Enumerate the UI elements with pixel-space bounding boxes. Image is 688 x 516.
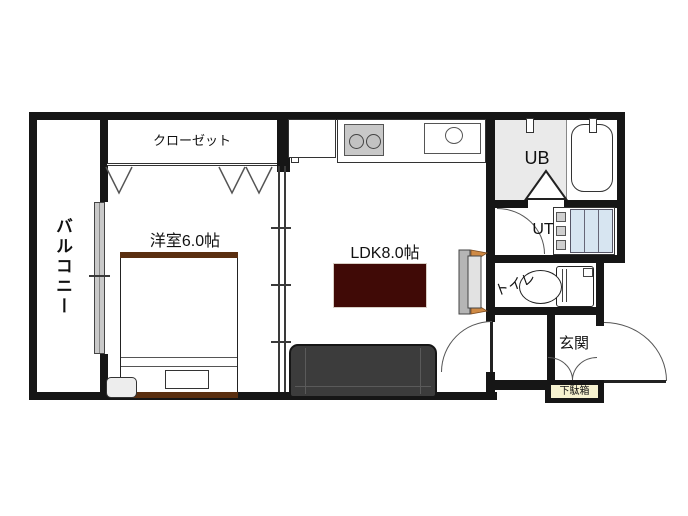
bed <box>120 252 238 398</box>
shower-faucet <box>526 118 534 133</box>
partition-tick-2 <box>271 284 291 286</box>
floorplan: バルコニー クローゼット 洋室6.0帖 LDK8.0帖 UB UT トイレ 玄関… <box>0 0 688 516</box>
closet-label: クローゼット <box>122 130 262 149</box>
ub-bottom-wall-left <box>492 200 528 208</box>
toilet-right-wall <box>596 255 604 315</box>
entrance-door-arc <box>604 322 667 381</box>
sink-drain <box>445 127 463 144</box>
partition-tick-1 <box>271 227 291 229</box>
wall-left <box>29 112 37 400</box>
bedroom-label: 洋室6.0帖 <box>115 227 255 251</box>
washing-machine <box>570 209 613 253</box>
partition-line-left <box>278 166 280 392</box>
balcony-label: バルコニー <box>50 192 75 342</box>
closet-door-marks <box>100 166 280 196</box>
burner-right <box>366 134 381 149</box>
rug <box>333 263 427 308</box>
toilet-sliding-door <box>457 247 489 317</box>
entrance-label: 玄関 <box>547 332 601 353</box>
partition-tick-3 <box>271 341 291 343</box>
bed-pillow <box>165 370 209 389</box>
shoe-cabinet-label: 下駄箱 <box>548 385 601 398</box>
kitchen-sink <box>424 123 481 154</box>
ldk-door-arc <box>441 321 492 372</box>
burner-left <box>349 134 364 149</box>
bath-folding-door <box>524 168 570 202</box>
refrigerator-space <box>288 119 336 158</box>
sofa <box>289 344 437 398</box>
window-tick <box>89 275 110 277</box>
partition-line-right <box>284 166 286 392</box>
wall-right-upper <box>617 112 625 263</box>
stove <box>344 124 384 156</box>
bathtub-faucet <box>589 118 597 133</box>
shoe-cabinet-door-arc-left <box>548 357 573 380</box>
refrigerator-foot <box>291 157 299 163</box>
utility-label: UT <box>513 221 573 239</box>
entrance-right-wall-stub <box>596 312 604 326</box>
shoe-cabinet-door-arc-right <box>572 357 597 380</box>
nightstand <box>106 377 137 398</box>
ldk-label: LDK8.0帖 <box>315 239 455 263</box>
unit-bath-label: UB <box>507 148 567 169</box>
bed-headboard-top <box>120 252 238 258</box>
bathtub <box>571 124 613 192</box>
ut-bottom-wall <box>492 255 625 263</box>
washer-knob-3 <box>556 240 566 250</box>
balcony-window <box>94 202 105 354</box>
bed-headboard-bottom <box>120 392 238 398</box>
